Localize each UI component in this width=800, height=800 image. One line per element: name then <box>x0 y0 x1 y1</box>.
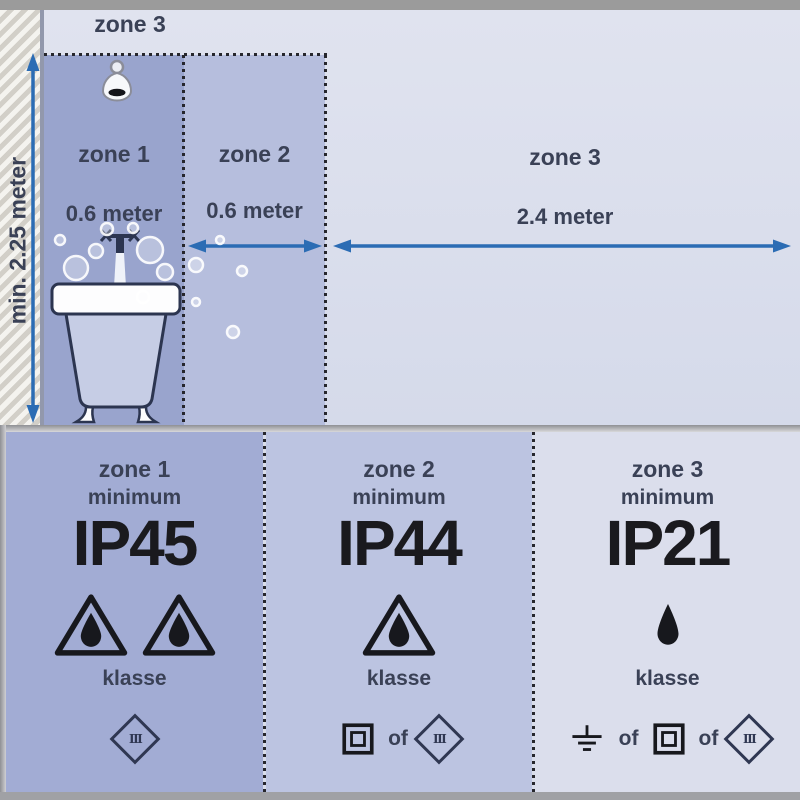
or-label: of <box>619 727 639 751</box>
top-frame-border <box>0 0 800 10</box>
panel3-ip-rating: IP21 <box>606 510 730 577</box>
zone1-label: zone 1 <box>44 142 184 167</box>
class-III-numeral: III <box>743 732 755 746</box>
panel1-ip-rating: IP45 <box>73 510 197 577</box>
panel2-ip-rating: IP44 <box>337 510 461 577</box>
class-III-numeral: III <box>128 732 140 746</box>
zone1-distance: 0.6 meter <box>44 202 184 226</box>
water-drop-triangle-icon <box>52 591 130 659</box>
zone2-zone3-boundary-dotted <box>324 55 327 425</box>
bottom-frame-border <box>0 792 800 800</box>
zone2-distance: 0.6 meter <box>184 199 325 223</box>
class-III-numeral: III <box>433 732 445 746</box>
panel3-klasse-label: klasse <box>635 667 699 691</box>
zone1-requirements-panel: zone 1 minimum IP45 klasse III <box>6 432 263 792</box>
zone3-label: zone 3 <box>498 145 632 170</box>
panels-top-border <box>0 425 800 432</box>
class-II-double-square-icon <box>341 722 375 756</box>
panel2-klasse-label: klasse <box>367 667 431 691</box>
zone2-area <box>184 55 325 425</box>
class-III-diamond-icon: III <box>724 714 775 765</box>
water-drop-triangle-icon <box>360 591 438 659</box>
zone2-requirements-panel: zone 2 minimum IP44 klasse of III <box>266 432 532 792</box>
outer-zone3-label: zone 3 <box>70 12 190 37</box>
panel1-zone-label: zone 1 <box>99 456 171 483</box>
zone-boundary-top-dotted <box>44 53 327 56</box>
water-drop-icon <box>654 600 682 650</box>
class-III-diamond-icon: III <box>413 714 464 765</box>
class-II-double-square-icon <box>652 722 686 756</box>
panel1-klasse-label: klasse <box>102 667 166 691</box>
wall-height-label: min. 2.25 meter <box>5 151 30 331</box>
zone3-requirements-panel: zone 3 minimum IP21 klasse of of III <box>535 432 800 792</box>
class-III-diamond-icon: III <box>109 714 160 765</box>
zone1-area <box>44 55 184 425</box>
zone3-distance: 2.4 meter <box>498 205 632 229</box>
zone2-label: zone 2 <box>184 142 325 167</box>
water-drop-triangle-icon <box>140 591 218 659</box>
panel2-zone-label: zone 2 <box>363 456 435 483</box>
or-label: of <box>699 727 719 751</box>
bathroom-zone-safety-diagram: zone 3 min. 2.25 meter zone 1 0.6 meter … <box>0 0 800 800</box>
or-label: of <box>388 727 408 751</box>
zone1-zone2-boundary-dotted <box>182 55 185 425</box>
panel3-zone-label: zone 3 <box>632 456 704 483</box>
class-I-earth-icon <box>568 722 606 756</box>
